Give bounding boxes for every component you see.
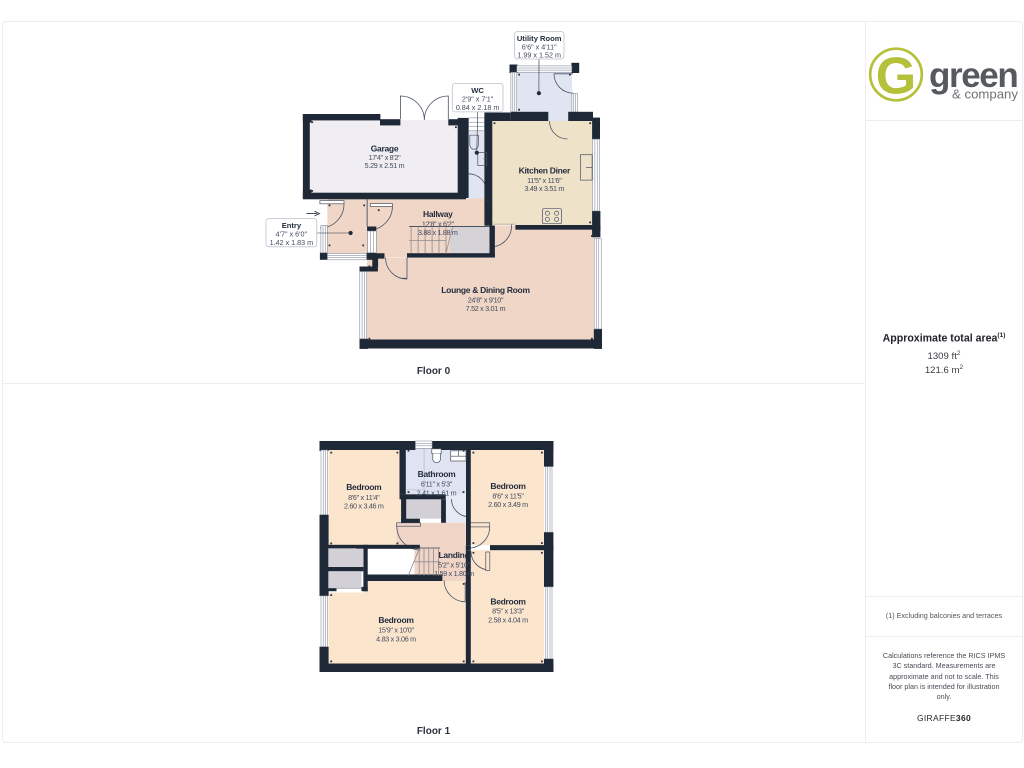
svg-text:3.49 x 3.51 m: 3.49 x 3.51 m bbox=[524, 184, 564, 193]
svg-text:1.42 x 1.83 m: 1.42 x 1.83 m bbox=[270, 238, 314, 247]
svg-text:0.84 x 2.18 m: 0.84 x 2.18 m bbox=[456, 103, 500, 112]
svg-text:2.58 x 4.04 m: 2.58 x 4.04 m bbox=[488, 616, 528, 625]
svg-text:Floor 0: Floor 0 bbox=[417, 366, 451, 377]
svg-text:Floor 1: Floor 1 bbox=[417, 726, 451, 737]
svg-text:6'11" x 5'3": 6'11" x 5'3" bbox=[421, 480, 453, 489]
svg-text:Utility Room: Utility Room bbox=[517, 34, 562, 43]
svg-text:2.60 x 3.49 m: 2.60 x 3.49 m bbox=[488, 500, 528, 509]
svg-text:Bathroom: Bathroom bbox=[418, 469, 456, 479]
svg-text:G: G bbox=[876, 48, 916, 106]
svg-text:1.99 x 1.52 m: 1.99 x 1.52 m bbox=[517, 51, 561, 60]
svg-text:Kitchen Diner: Kitchen Diner bbox=[519, 165, 571, 175]
svg-text:2.60 x 3.46 m: 2.60 x 3.46 m bbox=[344, 502, 384, 511]
svg-text:Hallway: Hallway bbox=[423, 209, 453, 219]
svg-text:3.88 x 1.88 m: 3.88 x 1.88 m bbox=[418, 228, 458, 237]
svg-text:Landing: Landing bbox=[439, 550, 470, 560]
svg-text:Bedroom: Bedroom bbox=[346, 482, 382, 492]
svg-text:15'9" x 10'0": 15'9" x 10'0" bbox=[378, 626, 414, 635]
svg-text:Bedroom: Bedroom bbox=[378, 615, 414, 625]
svg-text:& company: & company bbox=[952, 87, 1018, 102]
svg-text:1.59 x 1.80 m: 1.59 x 1.80 m bbox=[434, 569, 474, 578]
svg-text:4.83 x 3.06 m: 4.83 x 3.06 m bbox=[376, 635, 416, 644]
svg-text:Bedroom: Bedroom bbox=[490, 481, 526, 491]
svg-text:8'6" x 11'4": 8'6" x 11'4" bbox=[348, 493, 380, 502]
svg-text:7.52 x 3.01 m: 7.52 x 3.01 m bbox=[466, 304, 506, 313]
svg-text:WC: WC bbox=[471, 86, 484, 95]
svg-text:5.29 x 2.51 m: 5.29 x 2.51 m bbox=[365, 161, 405, 170]
svg-text:Garage: Garage bbox=[371, 143, 399, 153]
svg-text:Bedroom: Bedroom bbox=[490, 597, 526, 607]
svg-text:8'5" x 13'3": 8'5" x 13'3" bbox=[492, 607, 525, 616]
svg-text:Lounge & Dining Room: Lounge & Dining Room bbox=[441, 285, 530, 295]
svg-text:2.41 x 1.61 m: 2.41 x 1.61 m bbox=[417, 489, 457, 498]
